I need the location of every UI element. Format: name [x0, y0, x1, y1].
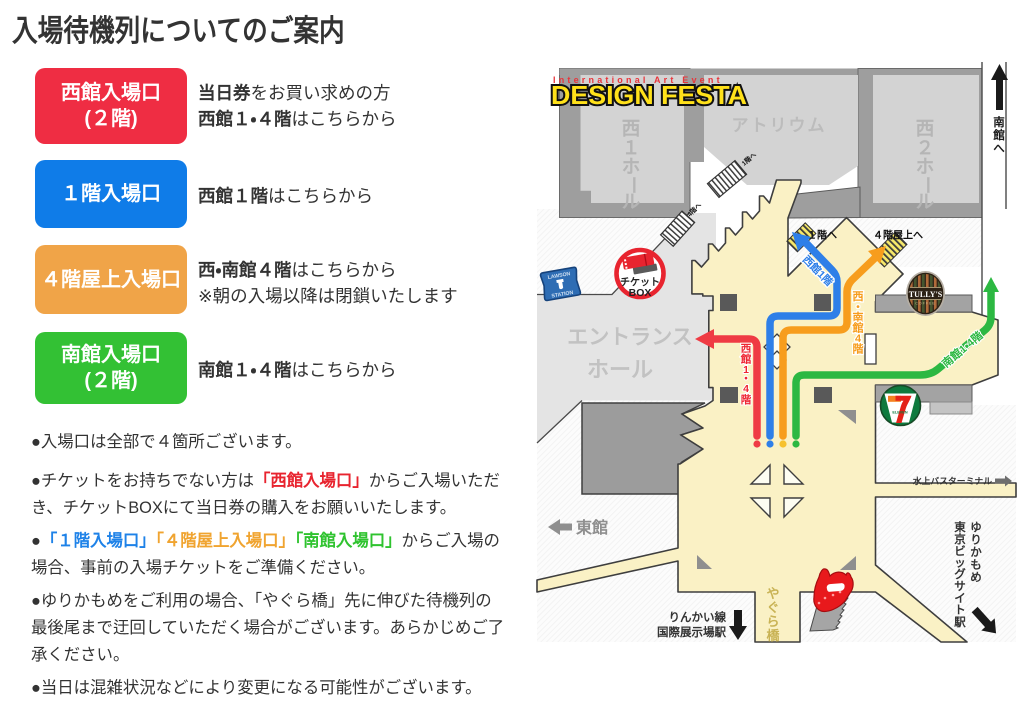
svg-text:駅: 駅 [953, 616, 966, 629]
svg-text:TULLY'S: TULLY'S [909, 290, 943, 299]
svg-text:館: 館 [992, 128, 1005, 142]
svg-text:グ: グ [954, 567, 966, 581]
svg-text:２: ２ [916, 137, 935, 158]
svg-text:１: １ [622, 137, 641, 158]
svg-text:ホ: ホ [622, 156, 641, 177]
svg-text:ト: ト [954, 604, 966, 617]
svg-text:DESIGN FESTA: DESIGN FESTA [551, 80, 747, 110]
svg-text:イ: イ [954, 592, 966, 605]
svg-text:ぐ: ぐ [766, 600, 779, 615]
svg-text:ら: ら [766, 614, 779, 629]
svg-text:り: り [970, 534, 982, 547]
svg-text:西: 西 [916, 118, 935, 139]
svg-text:りんかい線: りんかい線 [669, 610, 727, 624]
svg-text:アトリウム: アトリウム [732, 116, 827, 135]
svg-text:東館: 東館 [576, 518, 608, 537]
svg-text:ホール: ホール [587, 357, 653, 382]
svg-text:階: 階 [853, 342, 864, 356]
svg-text:め: め [970, 571, 982, 584]
svg-text:ビ: ビ [954, 544, 966, 558]
svg-text:か: か [970, 546, 982, 559]
svg-text:へ: へ [993, 143, 1005, 155]
svg-text:ゆ: ゆ [970, 521, 982, 534]
svg-text:西: 西 [622, 118, 641, 139]
svg-text:エントランス: エントランス [567, 326, 693, 349]
svg-text:京: 京 [954, 532, 966, 546]
svg-text:東: 東 [954, 520, 966, 534]
svg-text:階: 階 [741, 393, 752, 406]
svg-text:サ: サ [954, 580, 966, 593]
svg-text:ッ: ッ [954, 558, 966, 570]
svg-text:COFFEE: COFFEE [915, 302, 936, 306]
svg-text:１階へ: １階へ [807, 229, 837, 242]
svg-text:ル: ル [916, 191, 935, 212]
svg-text:橋: 橋 [766, 628, 780, 643]
svg-text:ホ: ホ [916, 156, 935, 177]
svg-text:国際展示場駅: 国際展示場駅 [657, 625, 726, 639]
svg-text:BOX: BOX [629, 287, 652, 299]
svg-text:ル: ル [622, 191, 641, 212]
svg-text:４階屋上へ: ４階屋上へ [873, 229, 923, 242]
svg-text:も: も [970, 559, 982, 572]
svg-text:ELEVEN: ELEVEN [892, 411, 907, 415]
svg-text:水上バスターミナル: 水上バスターミナル [912, 475, 992, 486]
svg-text:南: 南 [993, 115, 1005, 129]
svg-text:や: や [766, 586, 779, 601]
